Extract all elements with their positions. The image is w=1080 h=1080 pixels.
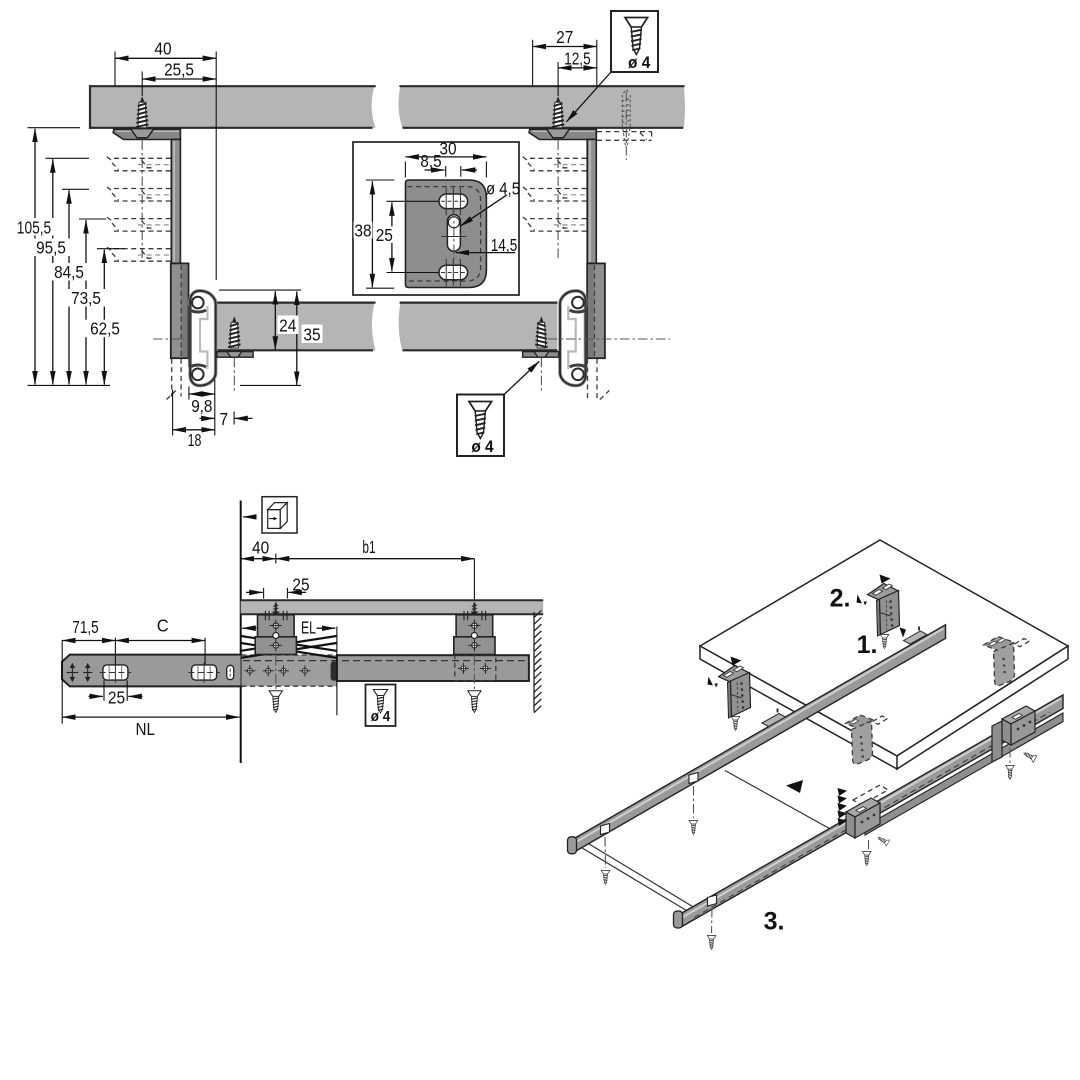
svg-text:105,5: 105,5 — [17, 217, 51, 237]
svg-text:12,5: 12,5 — [564, 48, 591, 68]
svg-text:40: 40 — [252, 538, 269, 558]
svg-text:1.: 1. — [857, 631, 878, 659]
svg-text:30: 30 — [439, 138, 456, 158]
svg-text:27: 27 — [556, 27, 573, 47]
svg-text:b1: b1 — [362, 537, 375, 557]
svg-text:35: 35 — [303, 325, 320, 345]
svg-text:C: C — [157, 615, 169, 635]
svg-text:25: 25 — [292, 575, 309, 595]
svg-text:7: 7 — [220, 409, 229, 429]
svg-text:EL: EL — [301, 617, 316, 637]
svg-text:2.: 2. — [830, 585, 851, 613]
svg-text:25: 25 — [108, 687, 125, 707]
svg-text:3.: 3. — [764, 908, 785, 936]
svg-text:ø 4: ø 4 — [371, 708, 391, 725]
svg-text:14,5: 14,5 — [491, 235, 518, 255]
svg-text:71,5: 71,5 — [72, 617, 98, 637]
svg-text:73,5: 73,5 — [71, 288, 101, 308]
svg-text:24: 24 — [279, 316, 296, 336]
svg-text:62,5: 62,5 — [90, 319, 120, 339]
svg-text:ø 4,5: ø 4,5 — [486, 178, 520, 198]
svg-text:9,8: 9,8 — [191, 396, 212, 416]
svg-text:38: 38 — [354, 220, 371, 240]
svg-text:ø 4: ø 4 — [471, 438, 494, 456]
svg-text:ø 4: ø 4 — [628, 54, 651, 72]
svg-text:NL: NL — [136, 719, 156, 739]
svg-text:25,5: 25,5 — [164, 59, 194, 79]
svg-text:84,5: 84,5 — [54, 262, 84, 282]
svg-text:8,5: 8,5 — [420, 151, 441, 171]
svg-text:18: 18 — [188, 430, 202, 450]
svg-text:40: 40 — [154, 39, 171, 59]
svg-text:25: 25 — [376, 225, 393, 245]
svg-text:95,5: 95,5 — [36, 238, 66, 258]
